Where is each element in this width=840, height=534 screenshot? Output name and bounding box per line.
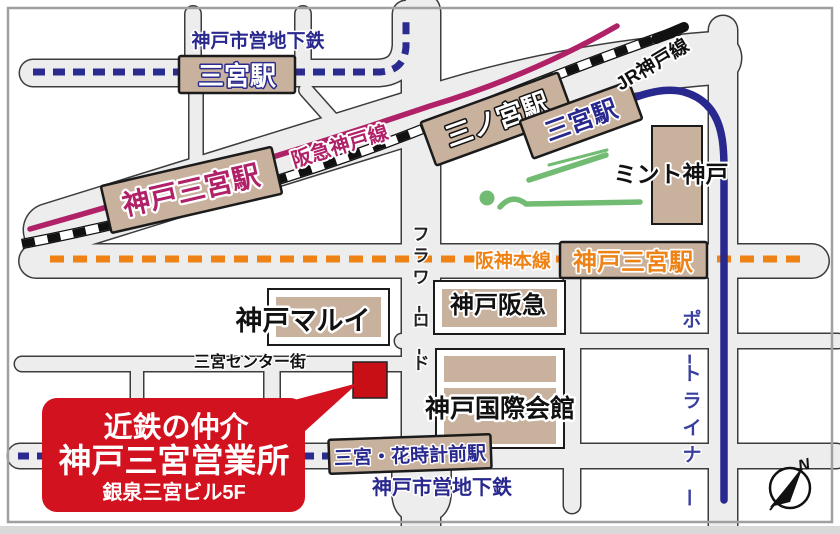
greenery-stroke <box>500 199 640 207</box>
station-hanadokei-mae: 三宮・花時計前駅 <box>328 434 491 474</box>
center-street-label: 三宮センター街 <box>194 352 306 371</box>
kobe-marui-label: 神戸マルイ <box>236 306 371 336</box>
hanshin-line-label: 阪神本線 <box>475 249 551 272</box>
subway-bottom-label: 神戸市営地下鉄 <box>372 475 512 499</box>
mint-kobe-label: ミント神戸 <box>614 161 729 187</box>
station-label: 神戸三宮駅 <box>573 248 693 276</box>
bottom-edge-strip <box>0 526 840 534</box>
station-hanshin-kobe-sannomiya: 神戸三宮駅 <box>560 242 707 278</box>
kokusai-kaikan-label: 神戸国際会館 <box>425 394 575 423</box>
callout-line1: 近鉄の仲介 <box>103 410 249 444</box>
callout-line2: 神戸三宮営業所 <box>59 442 290 479</box>
kobe-hankyu-label: 神戸阪急 <box>450 291 546 319</box>
access-map: 三宮駅 神戸三宮駅 三ノ宮駅 三宮駅 神戸三宮駅 三宮・花時計前駅 神戸市営地下… <box>0 0 840 534</box>
callout-line3: 銀泉三宮ビル5F <box>102 480 245 504</box>
office-location-marker <box>353 362 387 398</box>
station-label: 三宮駅 <box>198 61 276 91</box>
subway-top-label: 神戸市営地下鉄 <box>191 29 324 52</box>
station-subway-sannomiya: 三宮駅 <box>179 56 295 93</box>
tree-icon <box>480 191 495 206</box>
